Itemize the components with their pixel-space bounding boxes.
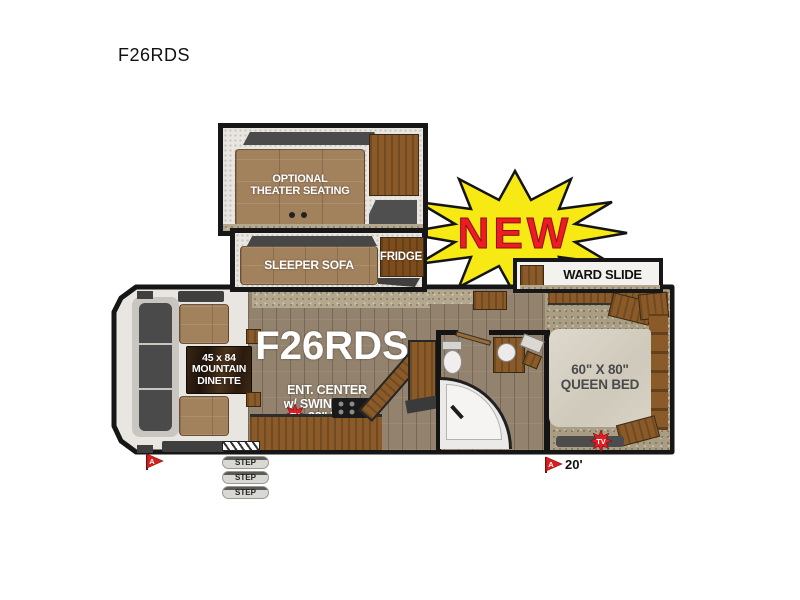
bath-wall-top-right <box>489 330 547 335</box>
window-mullion-1 <box>139 343 172 345</box>
entry-door <box>222 441 260 451</box>
length-flag-icon: A <box>543 455 563 475</box>
ward-label: WARD SLIDE <box>545 267 660 282</box>
living-carpet-strip <box>252 290 430 308</box>
kitchen-counter <box>250 414 382 450</box>
overhead-cabinet <box>473 291 507 310</box>
vanity-sink <box>497 343 516 362</box>
interior-layer: 45 x 84 MOUNTAIN DINETTE F26RDS ENT. CEN… <box>0 0 800 600</box>
hall-carpet-strip <box>430 290 473 304</box>
dinette-bench-top <box>179 304 229 344</box>
tv-icon-bedroom: TV <box>590 430 612 452</box>
toilet-tank <box>442 341 462 350</box>
floorplan-canvas: F26RDS NEW 45 x 84 MOUNTAIN DINETTE F26R… <box>0 0 800 600</box>
ward-cabinet <box>520 265 544 286</box>
theater-cupholder-1 <box>289 212 295 218</box>
headboard <box>649 314 668 430</box>
theater-cabinet <box>369 134 419 196</box>
theater-slide: OPTIONAL THEATER SEATING <box>218 123 428 236</box>
entry-flag-icon: A <box>144 452 164 472</box>
nose-trim-top <box>137 291 153 299</box>
front-cabinet-top <box>178 291 224 302</box>
fridge-base <box>378 278 420 287</box>
pantry-cabinet <box>408 340 437 404</box>
sofa-label: SLEEPER SOFA <box>235 259 383 272</box>
queen-bed-label: 60" X 80" QUEEN BED <box>549 363 651 392</box>
step-2: STEP <box>222 471 269 484</box>
theater-tv-panel <box>369 200 417 226</box>
ward-slide: WARD SLIDE <box>513 258 663 293</box>
sofa-back <box>247 236 377 246</box>
sofa-slide: SLEEPER SOFA FRIDGE <box>230 228 427 292</box>
fridge-label: FRIDGE <box>376 251 426 263</box>
front-cabinet-bottom <box>162 441 224 452</box>
dinette-bench-bottom <box>179 396 229 436</box>
toilet-bowl <box>443 350 462 374</box>
window-mullion-2 <box>139 388 172 390</box>
dinette-label: 45 x 84 MOUNTAIN DINETTE <box>180 353 258 387</box>
length-flag-label: A <box>548 460 554 469</box>
length-text: 20' <box>565 457 583 472</box>
tv-marker-2: TV <box>596 437 606 446</box>
step-1: STEP <box>222 456 269 469</box>
theater-seat-back <box>243 132 381 145</box>
dinette-chair-2 <box>246 392 261 407</box>
step-3: STEP <box>222 486 269 499</box>
theater-label: OPTIONAL THEATER SEATING <box>225 174 375 198</box>
model-label: F26RDS <box>252 325 412 368</box>
front-window <box>139 303 172 431</box>
entry-flag-label: A <box>149 457 155 466</box>
theater-cupholder-2 <box>301 212 307 218</box>
ward-carpet <box>520 285 660 289</box>
